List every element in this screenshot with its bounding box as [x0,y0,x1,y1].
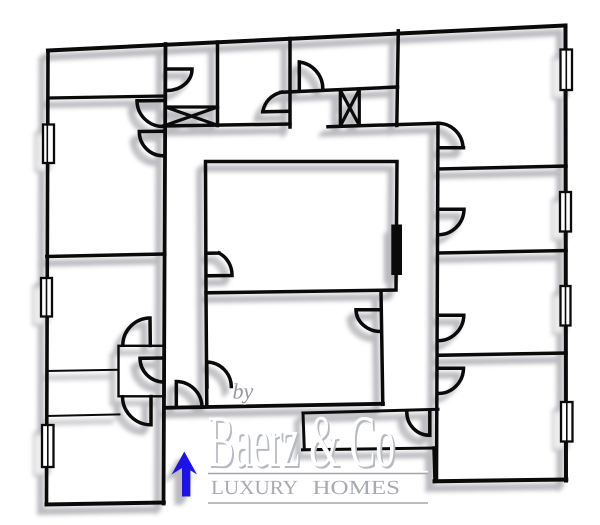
svg-text:by: by [233,379,254,404]
svg-text:HOMES: HOMES [313,477,401,499]
svg-text:LUXURY: LUXURY [211,477,298,499]
svg-text:Baerz & Co: Baerz & Co [208,401,395,483]
